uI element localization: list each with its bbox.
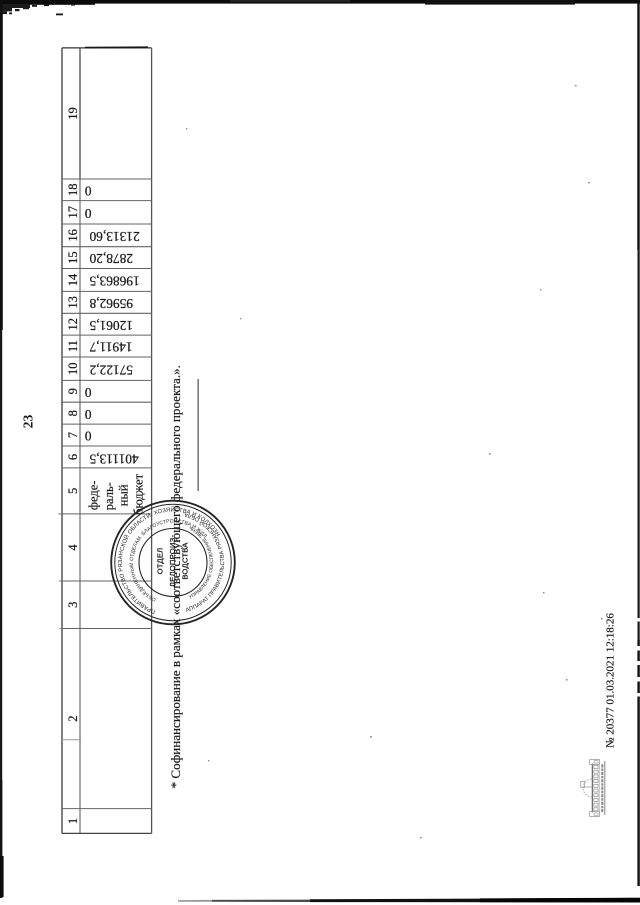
svg-text:0: 0	[85, 407, 92, 422]
svg-text:5: 5	[66, 488, 80, 494]
svg-text:19: 19	[66, 107, 80, 120]
svg-text:ДЕЛОПРОИЗ-: ДЕЛОПРОИЗ-	[168, 534, 177, 587]
svg-text:0: 0	[85, 385, 92, 400]
svg-text:12061,5: 12061,5	[89, 318, 133, 333]
svg-text:16: 16	[66, 229, 80, 242]
svg-text:196863,5: 196863,5	[89, 274, 140, 289]
svg-text:7: 7	[66, 432, 80, 438]
svg-text:1: 1	[66, 818, 80, 824]
svg-text:ВОДСТВА: ВОДСТВА	[181, 542, 190, 580]
svg-text:0: 0	[85, 183, 92, 198]
svg-text:14: 14	[66, 273, 80, 286]
svg-text:раль-: раль-	[102, 482, 116, 510]
svg-text:2: 2	[66, 715, 80, 721]
svg-text:4: 4	[66, 544, 80, 551]
svg-text:0: 0	[85, 429, 92, 444]
svg-text:17: 17	[66, 206, 80, 219]
svg-text:9: 9	[66, 388, 80, 394]
svg-text:0: 0	[85, 206, 92, 221]
svg-text:12: 12	[66, 318, 80, 331]
svg-text:ный: ный	[117, 484, 131, 506]
svg-text:феде-: феде-	[87, 481, 101, 511]
svg-text:2878,20: 2878,20	[89, 251, 133, 266]
svg-text:3: 3	[66, 602, 80, 608]
svg-text:8: 8	[66, 410, 80, 416]
svg-text:ОТДЕЛ: ОТДЕЛ	[156, 548, 165, 575]
svg-text:13: 13	[66, 296, 80, 309]
svg-text:18: 18	[66, 184, 80, 197]
svg-text:№ 20377 01.03.2021 12:18:26: № 20377 01.03.2021 12:18:26	[605, 613, 617, 748]
svg-text:95962,8: 95962,8	[89, 296, 133, 311]
svg-text:11: 11	[66, 340, 80, 352]
svg-text:15: 15	[66, 251, 80, 264]
svg-text:401113,5: 401113,5	[89, 452, 139, 467]
svg-text:23: 23	[21, 415, 36, 429]
svg-text:6: 6	[66, 454, 80, 460]
svg-text:10: 10	[66, 362, 80, 375]
svg-text:57122,2: 57122,2	[90, 362, 134, 377]
svg-text:14911,7: 14911,7	[89, 340, 132, 355]
svg-text:21313,60: 21313,60	[89, 229, 140, 244]
